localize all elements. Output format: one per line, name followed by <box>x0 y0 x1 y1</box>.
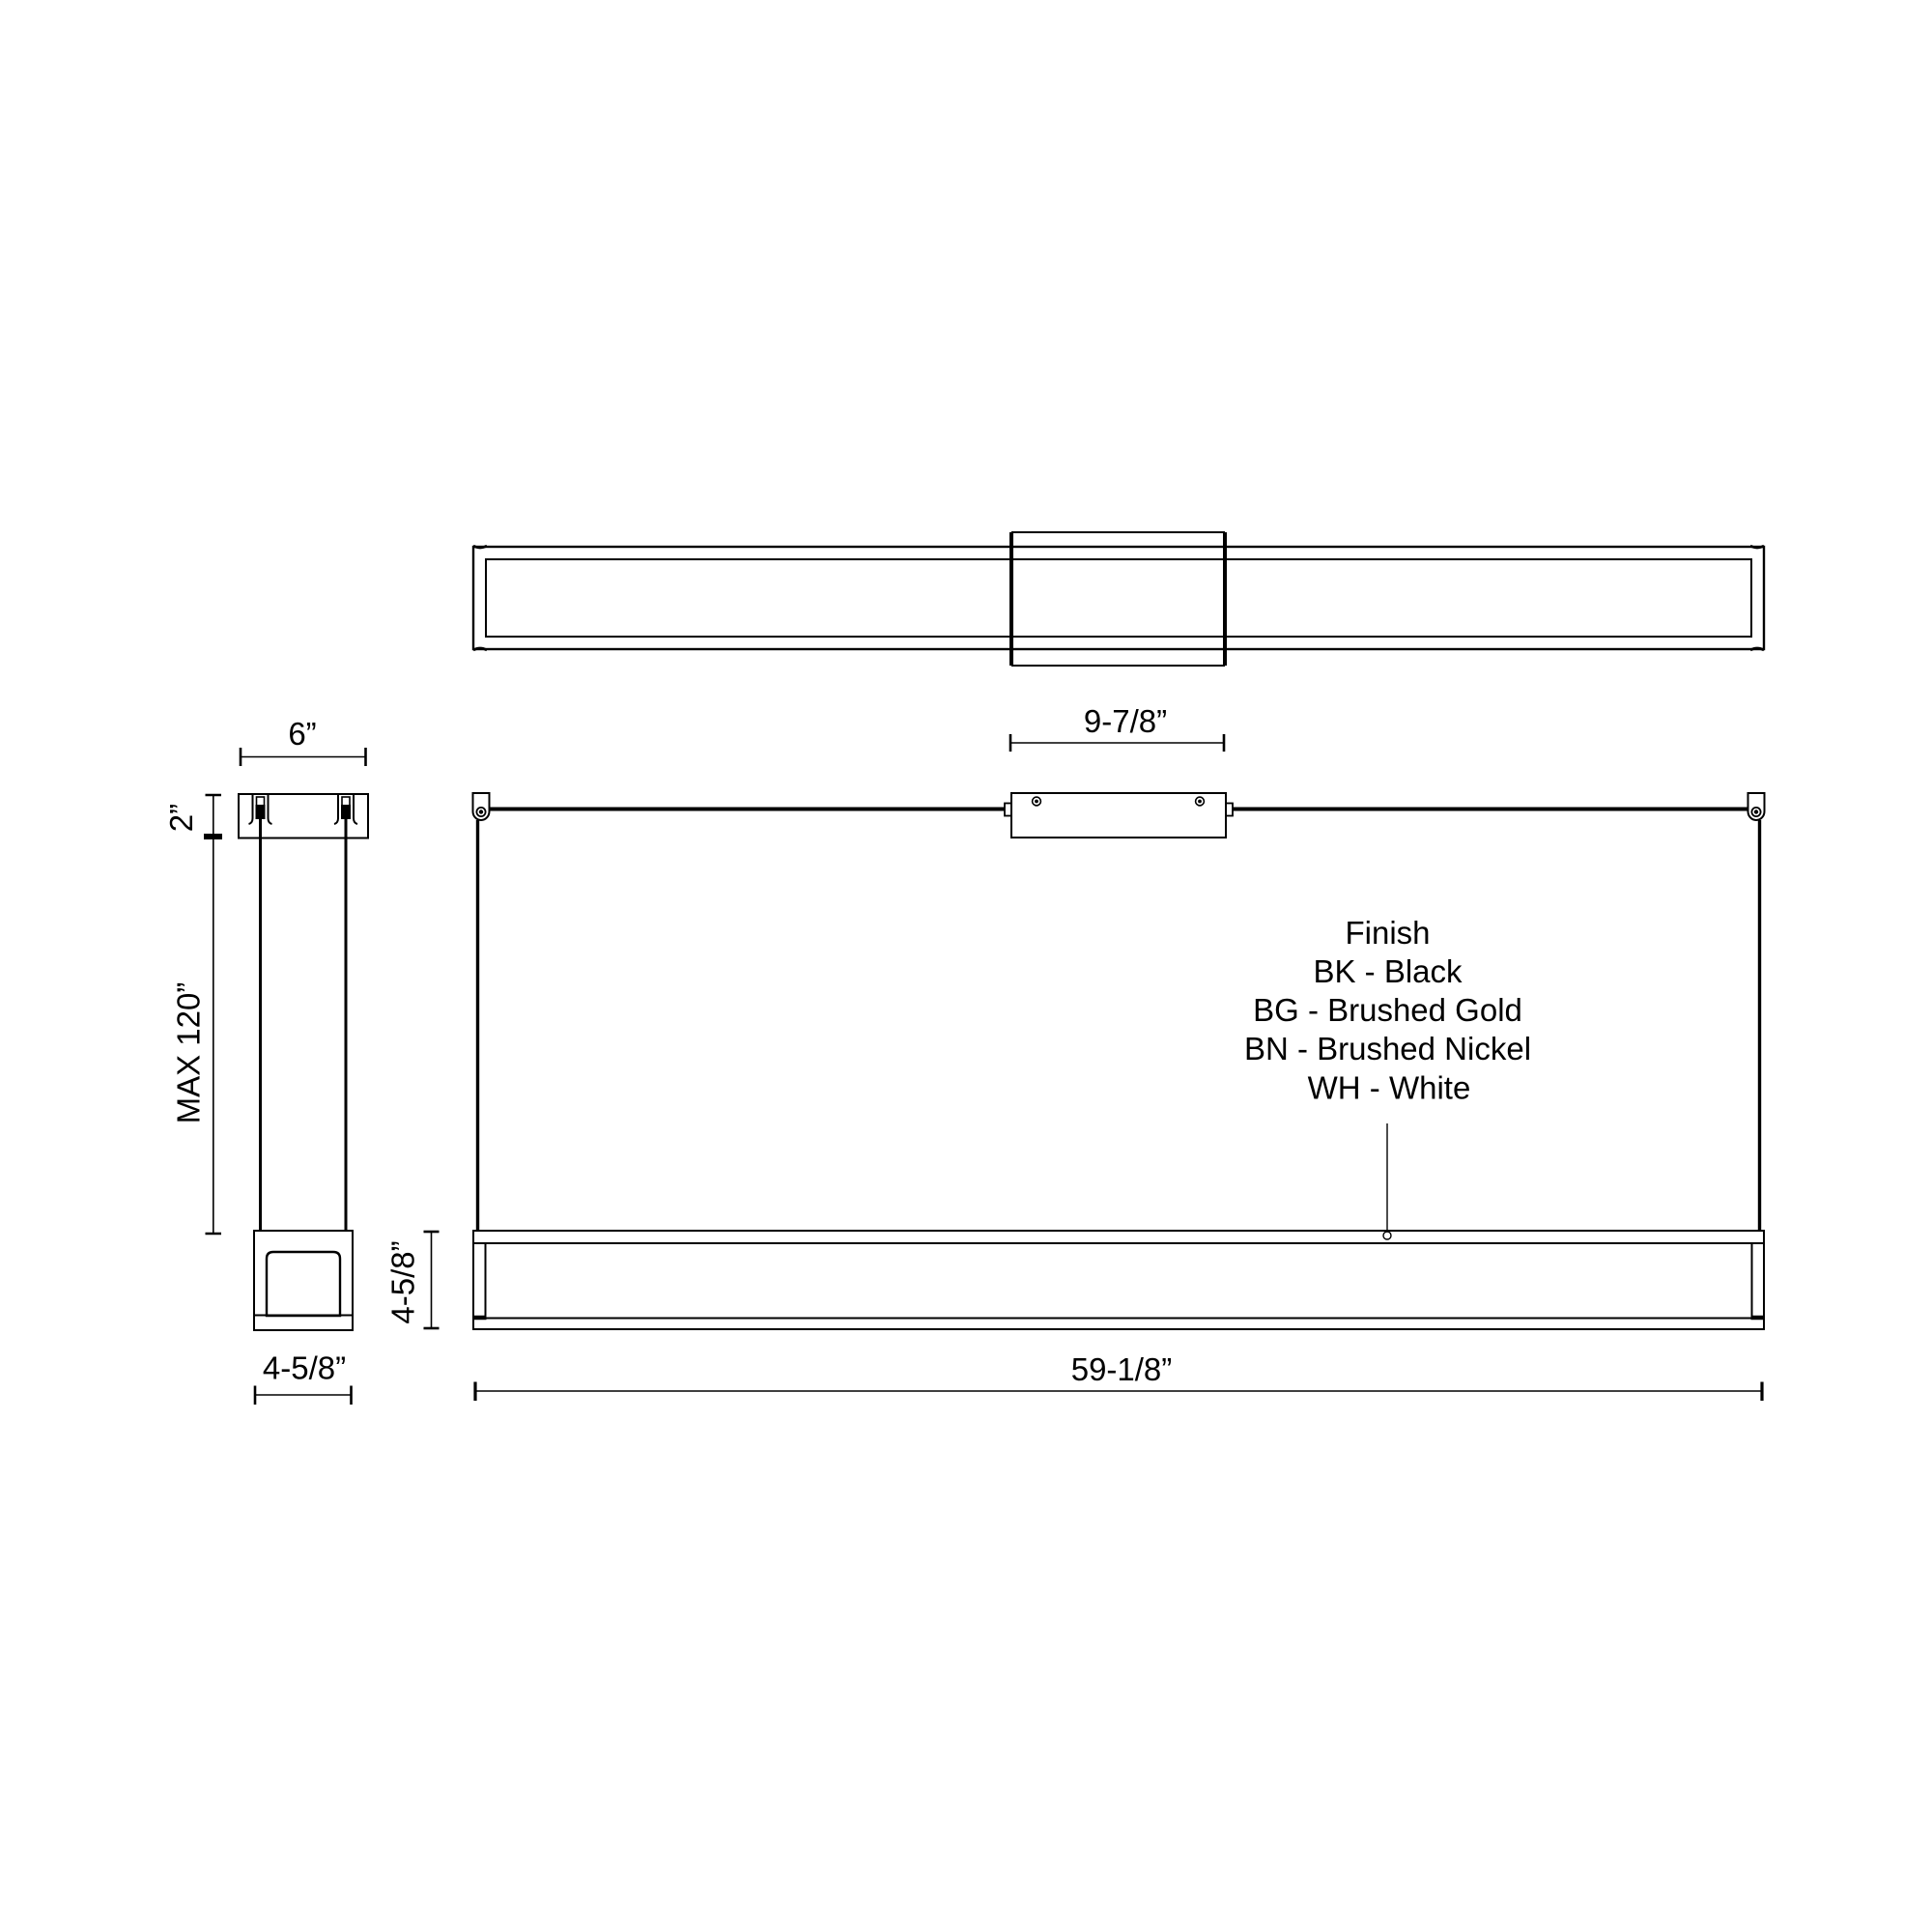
svg-text:4-5/8”: 4-5/8” <box>263 1350 346 1386</box>
svg-text:9-7/8”: 9-7/8” <box>1084 703 1167 739</box>
svg-text:4-5/8”: 4-5/8” <box>385 1240 421 1323</box>
svg-text:BN - Brushed Nickel: BN - Brushed Nickel <box>1244 1031 1531 1066</box>
svg-text:WH - White: WH - White <box>1308 1070 1471 1106</box>
svg-text:59-1/8”: 59-1/8” <box>1071 1351 1173 1387</box>
svg-text:BG - Brushed Gold: BG - Brushed Gold <box>1253 992 1522 1028</box>
svg-text:Finish: Finish <box>1345 915 1430 951</box>
svg-text:2”: 2” <box>163 804 199 832</box>
svg-text:MAX 120”: MAX 120” <box>171 982 207 1124</box>
svg-text:6”: 6” <box>288 716 316 752</box>
svg-text:BK - Black: BK - Black <box>1313 953 1463 989</box>
